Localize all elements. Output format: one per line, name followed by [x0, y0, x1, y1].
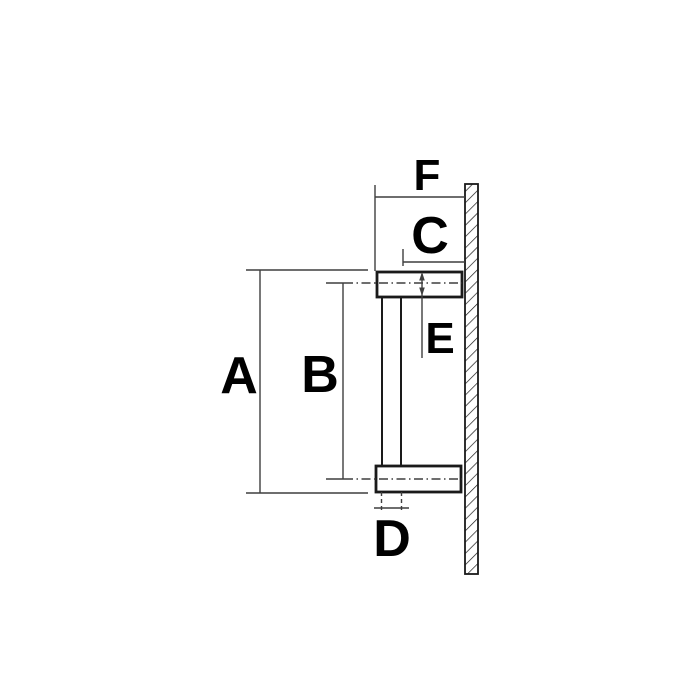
dimension-label-f: F: [414, 151, 441, 200]
wall-section: [465, 184, 478, 574]
dimension-label-c: C: [411, 207, 449, 265]
dimension-label-b: B: [301, 346, 339, 404]
technical-drawing-page: A B C D E F: [0, 0, 700, 700]
dimension-label-d: D: [373, 510, 411, 568]
dimension-label-e: E: [425, 314, 454, 363]
top-standoff: [377, 272, 462, 297]
wall-hatched-strip: [465, 184, 478, 574]
handle-dimension-diagram: A B C D E F: [0, 0, 700, 700]
dimension-label-a: A: [220, 347, 258, 405]
drawing-background: [0, 0, 700, 700]
